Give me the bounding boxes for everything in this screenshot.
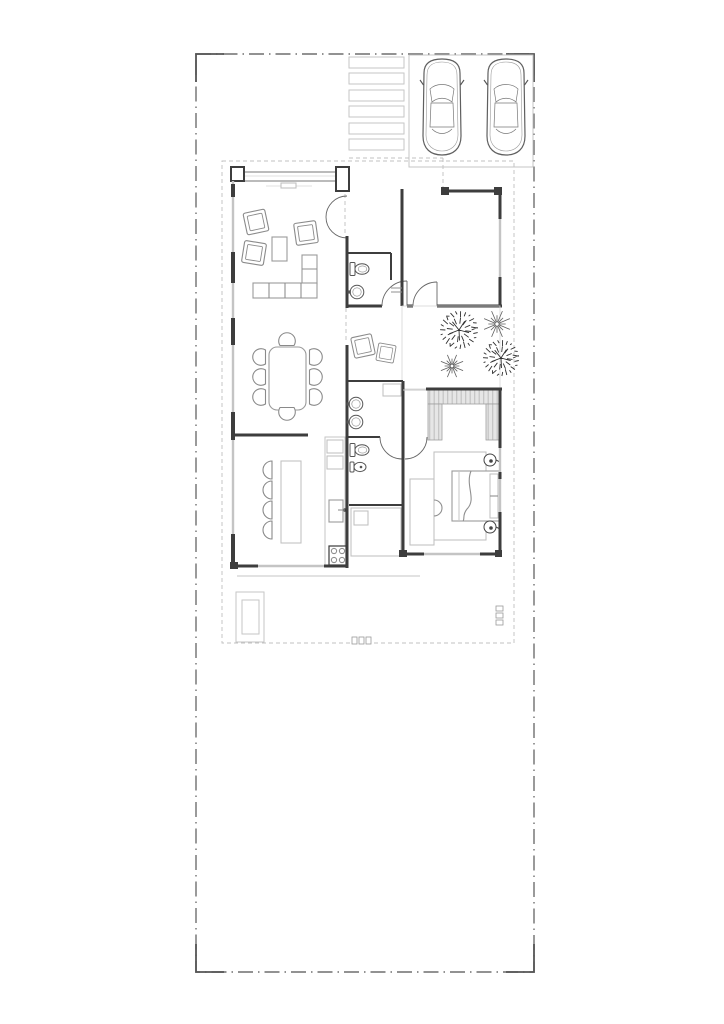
dining-chair — [279, 333, 296, 346]
living-window-band — [237, 172, 341, 181]
armchair — [243, 209, 269, 235]
dimension-mark — [496, 606, 503, 611]
bar-stool — [263, 521, 272, 539]
toilet — [350, 444, 369, 457]
driveway-stripe — [349, 90, 404, 101]
kitchen-cabinet — [327, 456, 343, 469]
dining-chair — [310, 349, 323, 366]
driveway-stripe — [349, 57, 404, 68]
entry-door-swing — [326, 217, 347, 238]
bar-stool — [263, 481, 272, 499]
dining-chair — [310, 389, 323, 406]
column — [336, 167, 349, 191]
boundary-corner-tl — [196, 54, 224, 82]
dining-chair — [279, 408, 296, 421]
column — [495, 550, 502, 557]
floor-plan-page — [0, 0, 724, 1024]
tree-canopy — [483, 340, 519, 376]
shrub — [484, 311, 510, 337]
desk-shelf — [383, 384, 401, 396]
window-mullion — [231, 412, 235, 440]
coffee-table — [272, 237, 287, 261]
toilet — [350, 263, 369, 276]
tree-canopy — [440, 311, 478, 349]
window-mullion — [231, 318, 235, 345]
door-swing — [413, 282, 437, 306]
driveway-stripe — [349, 123, 404, 134]
car-2 — [484, 59, 528, 155]
kitchen-sink — [329, 500, 343, 522]
dining-chair — [253, 349, 266, 366]
hall-connector-wall — [391, 288, 402, 292]
dining-chair — [310, 369, 323, 386]
wall-lamp — [484, 454, 500, 466]
bath-basin — [347, 415, 363, 429]
window-mullion — [231, 534, 235, 566]
sliding-door-handle — [281, 183, 296, 188]
driveway-stripe — [349, 139, 404, 150]
courtyard-outline — [402, 306, 500, 389]
wall-lamp — [484, 521, 500, 533]
car-1 — [420, 59, 464, 155]
wash-basin — [348, 285, 364, 299]
dining-chair — [253, 369, 266, 386]
kitchen-cabinet — [327, 440, 343, 453]
entry-door-swing — [326, 196, 347, 217]
driveway-stripe — [349, 106, 404, 117]
shower-tray — [354, 511, 368, 525]
door-swing — [380, 437, 402, 459]
closet-hatch — [428, 404, 442, 440]
bidet — [350, 462, 366, 472]
shrub — [441, 355, 463, 377]
closet-hatch — [486, 404, 500, 440]
armchair — [241, 240, 266, 265]
window-mullion — [231, 252, 235, 283]
column — [230, 562, 238, 569]
lounge-chair — [351, 334, 376, 359]
kitchen-island — [281, 461, 301, 543]
lounge-chair — [376, 343, 396, 363]
column — [441, 187, 449, 195]
bar-stool — [263, 461, 272, 479]
column — [231, 167, 244, 181]
armchair — [294, 221, 319, 246]
bedroom-door-swing — [405, 437, 427, 459]
dining-table — [269, 347, 306, 410]
dining-chair — [253, 389, 266, 406]
dimension-mark — [366, 637, 371, 644]
circulation-dashed-path — [345, 158, 443, 343]
bar-stool — [263, 501, 272, 519]
dimension-mark — [496, 620, 503, 625]
column — [399, 550, 407, 557]
boundary-corner-bl — [196, 944, 224, 972]
window-mullion — [231, 184, 235, 197]
dresser — [410, 479, 434, 545]
closet-hatch — [428, 390, 500, 404]
dimension-mark — [496, 613, 503, 618]
driveway-stripe — [349, 73, 404, 84]
dimension-mark — [359, 637, 364, 644]
bath-basin — [347, 397, 363, 411]
plan-root — [196, 54, 534, 972]
planter-inner — [242, 600, 259, 634]
floor-plan-canvas — [0, 0, 724, 1024]
dimension-mark — [352, 637, 357, 644]
boundary-corner-br — [506, 944, 534, 972]
